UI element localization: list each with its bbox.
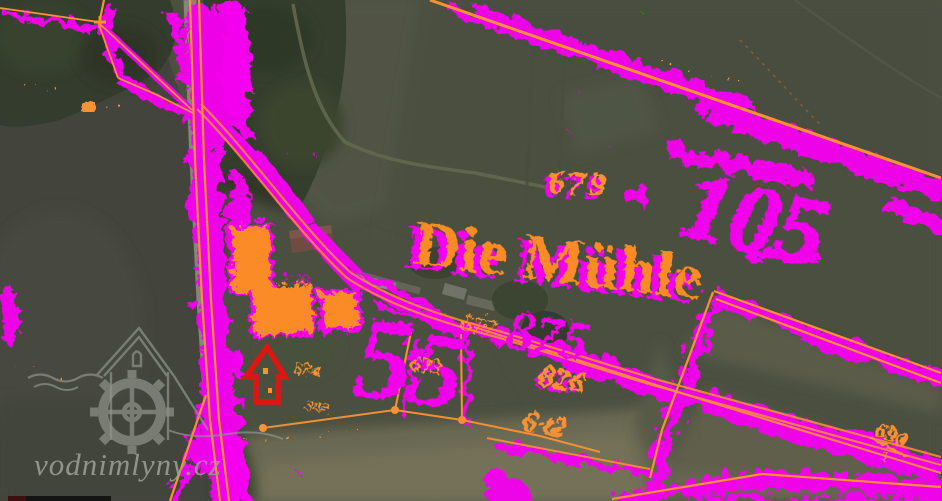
svg-text:679: 679 <box>545 162 609 202</box>
svg-text:302: 302 <box>301 395 328 415</box>
svg-text:vodnimlyny.cz: vodnimlyny.cz <box>34 447 222 482</box>
svg-text:674: 674 <box>290 356 320 380</box>
svg-text:6·t2: 6·t2 <box>519 403 568 442</box>
